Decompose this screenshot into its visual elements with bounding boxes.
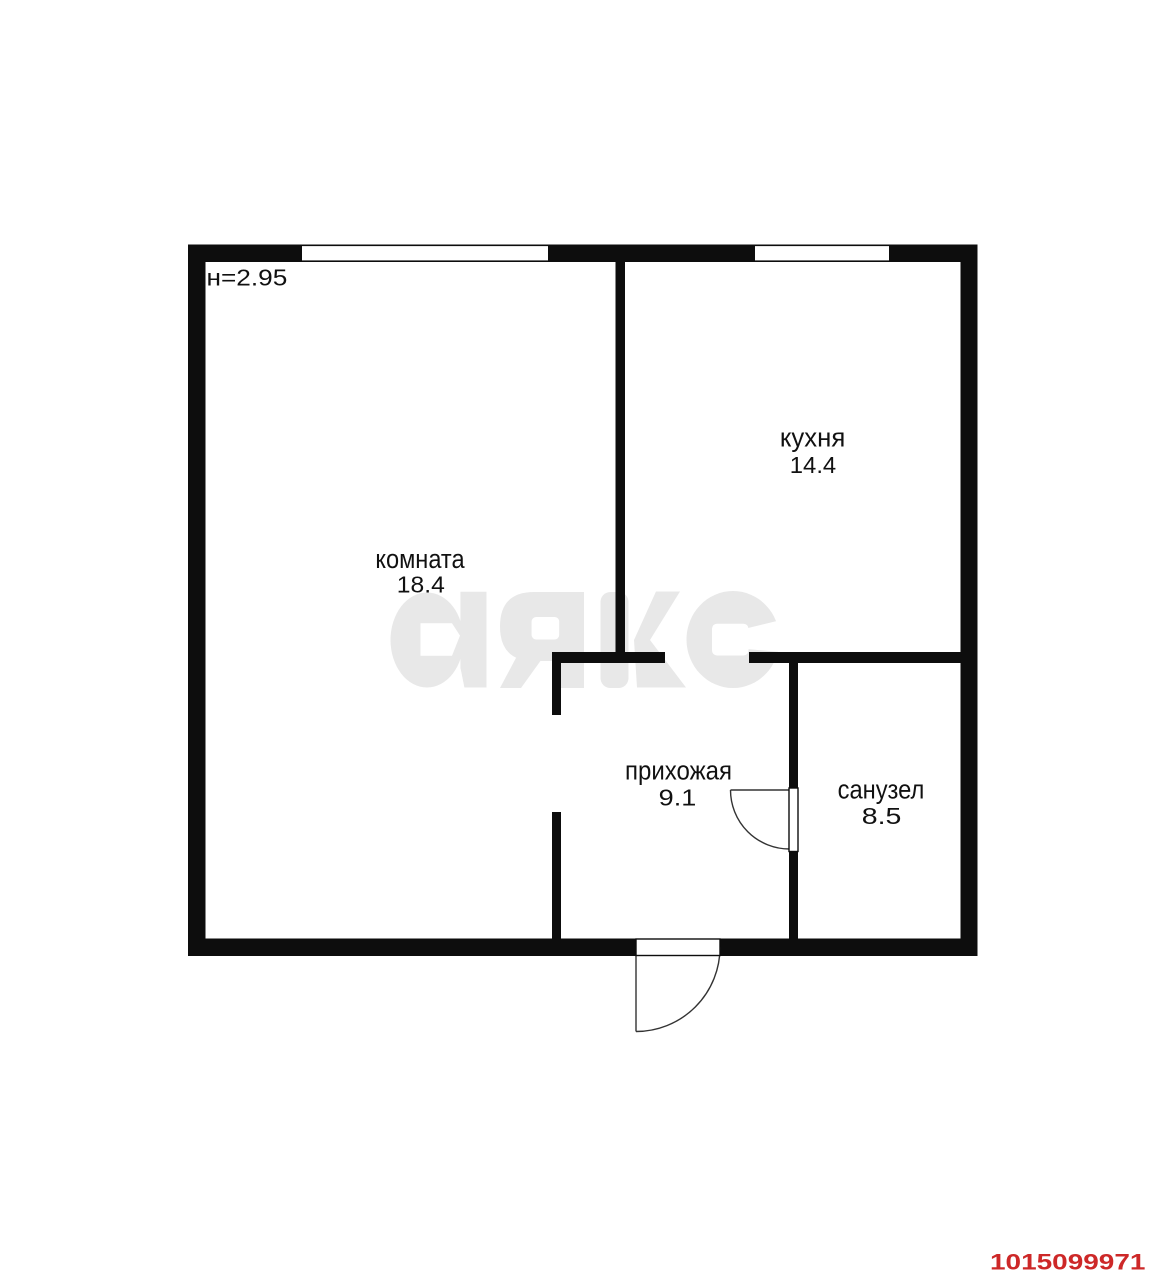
svg-text:18.4: 18.4 xyxy=(397,571,445,597)
svg-text:комната: комната xyxy=(375,544,465,574)
svg-text:кухня: кухня xyxy=(780,423,845,453)
svg-text:8.5: 8.5 xyxy=(862,803,902,829)
svg-text:прихожая: прихожая xyxy=(625,755,732,785)
svg-text:санузел: санузел xyxy=(838,774,925,804)
svg-text:14.4: 14.4 xyxy=(790,452,837,478)
svg-text:н=2.95: н=2.95 xyxy=(207,265,288,291)
svg-text:1015099971: 1015099971 xyxy=(990,1249,1145,1274)
svg-text:9.1: 9.1 xyxy=(659,785,697,811)
